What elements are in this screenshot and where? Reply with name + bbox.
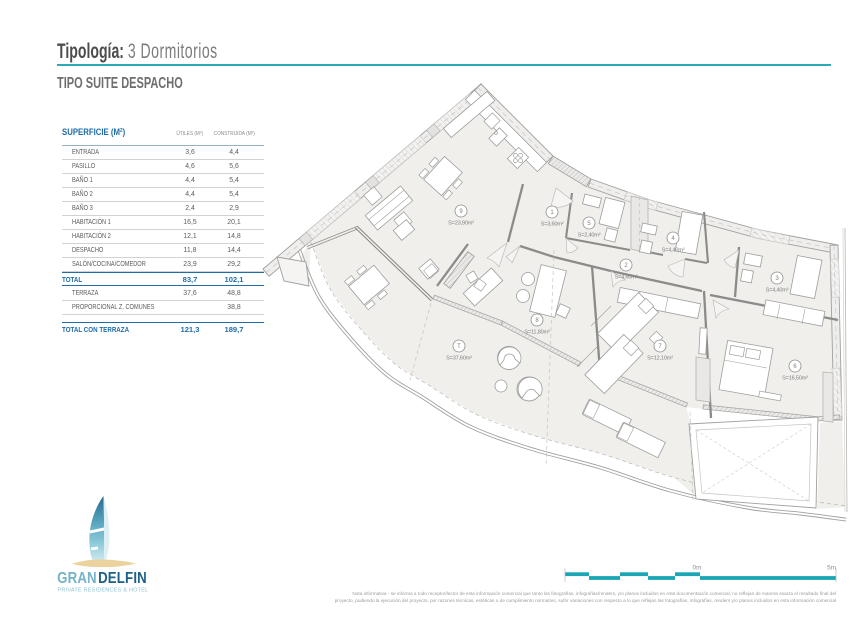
svg-text:S=3,60m²: S=3,60m² xyxy=(541,222,564,228)
svg-text:5m: 5m xyxy=(827,565,836,572)
svg-text:0m: 0m xyxy=(693,565,702,572)
svg-text:S=4,40m²: S=4,40m² xyxy=(766,288,789,294)
svg-text:S=12,10m²: S=12,10m² xyxy=(647,356,673,362)
svg-text:S=11,80m²: S=11,80m² xyxy=(524,330,550,336)
svg-text:S=4,60m²: S=4,60m² xyxy=(615,275,638,281)
svg-text:S=16,50m²: S=16,50m² xyxy=(782,376,808,382)
svg-text:S=23,90m²: S=23,90m² xyxy=(448,221,474,227)
svg-text:T: T xyxy=(457,344,461,350)
svg-text:S=37,60m²: S=37,60m² xyxy=(446,356,472,362)
svg-text:S=4,40m²: S=4,40m² xyxy=(662,248,685,254)
svg-text:S=2,40m²: S=2,40m² xyxy=(578,233,601,239)
